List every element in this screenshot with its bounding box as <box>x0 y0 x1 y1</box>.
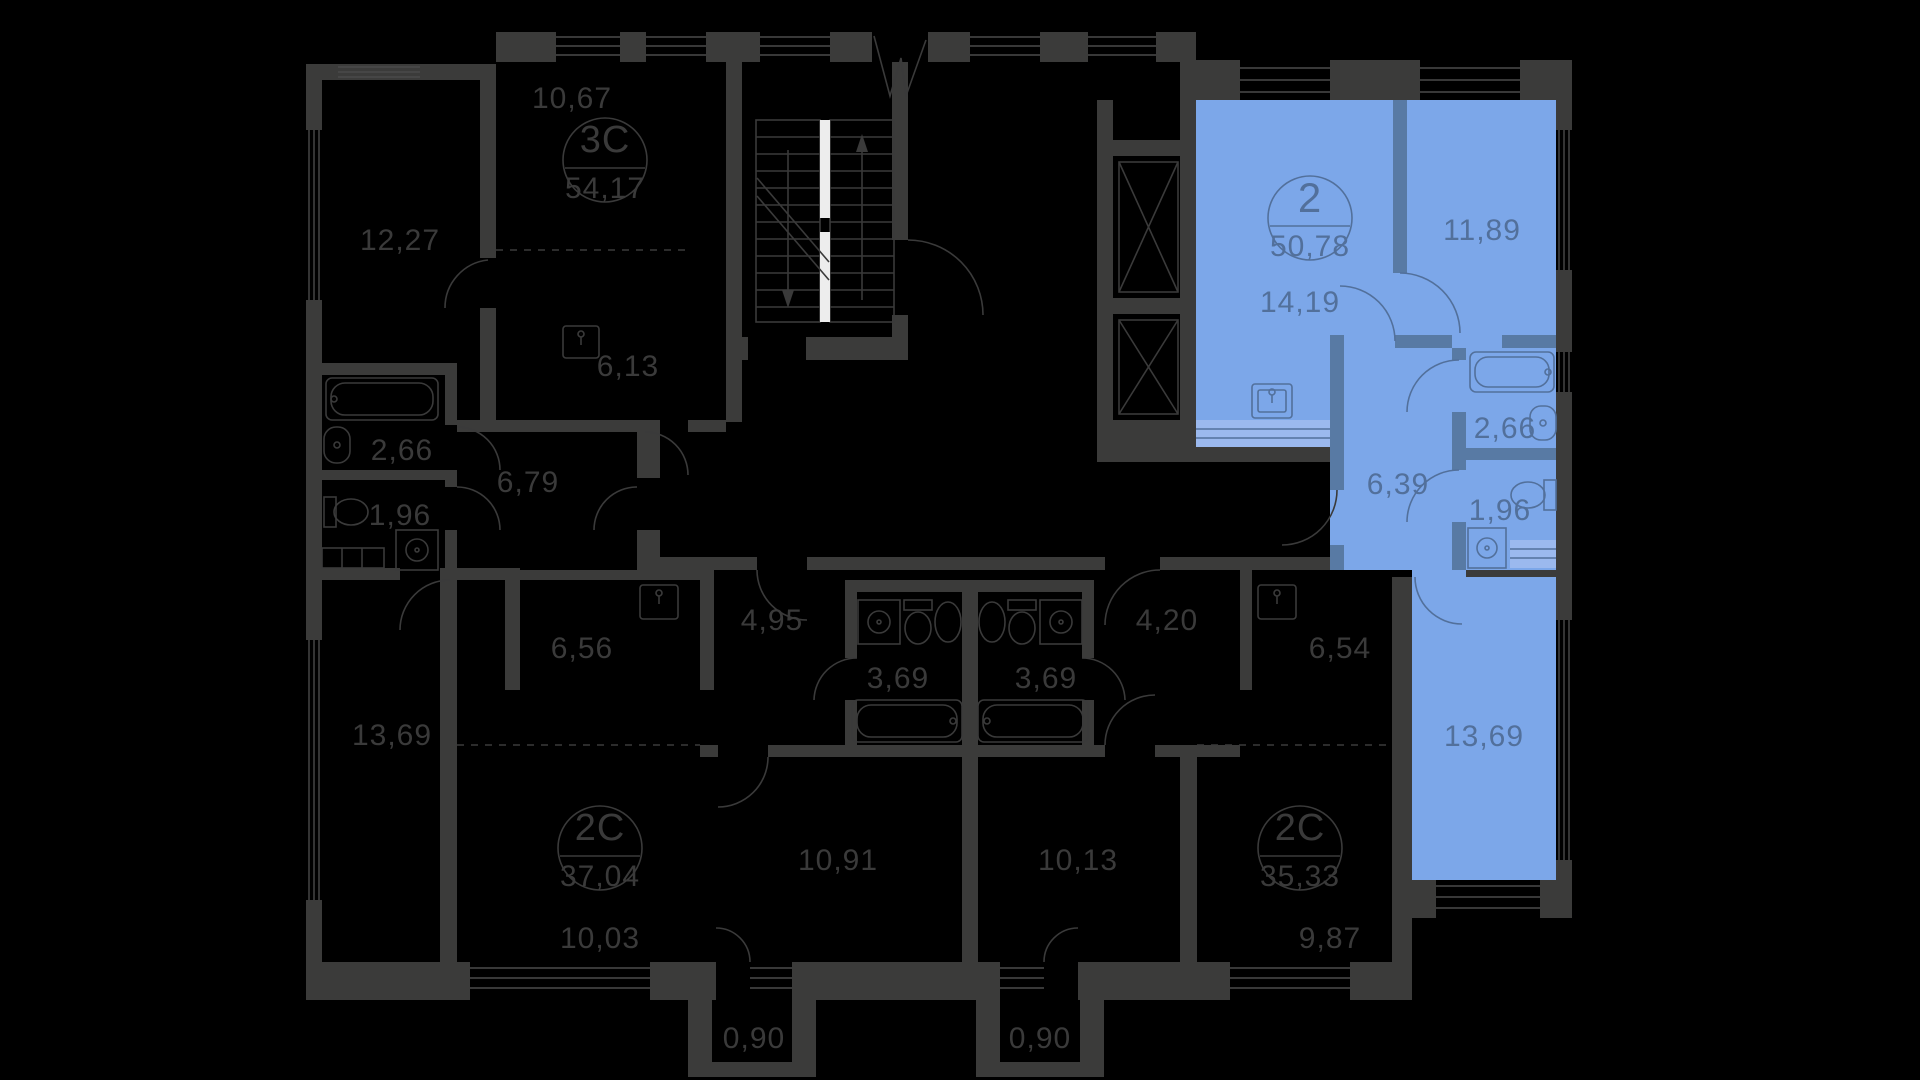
room-area-label: 6,54 <box>1309 632 1371 665</box>
room-area-label: 12,27 <box>360 224 440 257</box>
room-area-label: 6,79 <box>497 466 559 499</box>
apartment-area: 50,78 <box>1270 230 1350 263</box>
room-area-label: 6,39 <box>1367 468 1429 501</box>
kitchen-sink-icon <box>640 585 678 619</box>
room-area-label: 10,91 <box>798 844 878 877</box>
floor-plan: 3С 54,17 2 50,78 2С 37,04 2С 35,33 12,27… <box>0 0 1920 1080</box>
sink-icon <box>324 427 350 463</box>
apartment-type: 2С <box>1275 807 1326 849</box>
room-area-label: 6,13 <box>597 350 659 383</box>
elevator-shaft-2 <box>1119 320 1178 414</box>
bathtub-icon <box>326 378 438 420</box>
vent-shaft <box>322 548 384 568</box>
apartment-type: 2С <box>575 807 626 849</box>
apartment-badge-2c-right[interactable]: 2С 35,33 <box>1258 806 1342 893</box>
room-area-label: 13,69 <box>352 719 432 752</box>
balcony-area-label: 0,90 <box>1009 1022 1071 1055</box>
room-area-label: 1,96 <box>369 499 431 532</box>
elevator-shaft-1 <box>1119 162 1178 292</box>
room-area-label: 3,69 <box>1015 662 1077 695</box>
kitchen-sink-icon <box>563 326 599 358</box>
apartment-badge-3c[interactable]: 3С 54,17 <box>563 118 647 205</box>
apartment-badge-2c-left[interactable]: 2С 37,04 <box>558 806 642 893</box>
room-area-label: 4,20 <box>1136 604 1198 637</box>
apartment-area: 35,33 <box>1260 860 1340 893</box>
room-area-label: 1,96 <box>1469 494 1531 527</box>
room-area-label: 13,69 <box>1444 720 1524 753</box>
toilet-icon <box>324 497 368 527</box>
room-area-label: 11,89 <box>1443 214 1521 247</box>
kitchen-sink-icon <box>1258 585 1296 619</box>
room-area-label: 2,66 <box>1474 412 1536 445</box>
apartment-area: 54,17 <box>565 172 645 205</box>
apartment-area: 37,04 <box>560 860 640 893</box>
staircase <box>756 120 894 322</box>
room-area-label: 4,95 <box>741 604 803 637</box>
washing-machine-icon <box>396 530 438 570</box>
room-area-label: 14,19 <box>1260 286 1340 319</box>
room-area-label: 9,87 <box>1299 922 1361 955</box>
room-area-label: 6,56 <box>551 632 613 665</box>
apartment-type: 2 <box>1298 174 1322 221</box>
room-area-label: 10,13 <box>1038 844 1118 877</box>
room-area-label: 10,67 <box>532 82 612 115</box>
room-area-label: 2,66 <box>371 434 433 467</box>
room-area-label: 3,69 <box>867 662 929 695</box>
balcony-area-label: 0,90 <box>723 1022 785 1055</box>
room-area-label: 10,03 <box>560 922 640 955</box>
apartment-type: 3С <box>580 119 631 161</box>
